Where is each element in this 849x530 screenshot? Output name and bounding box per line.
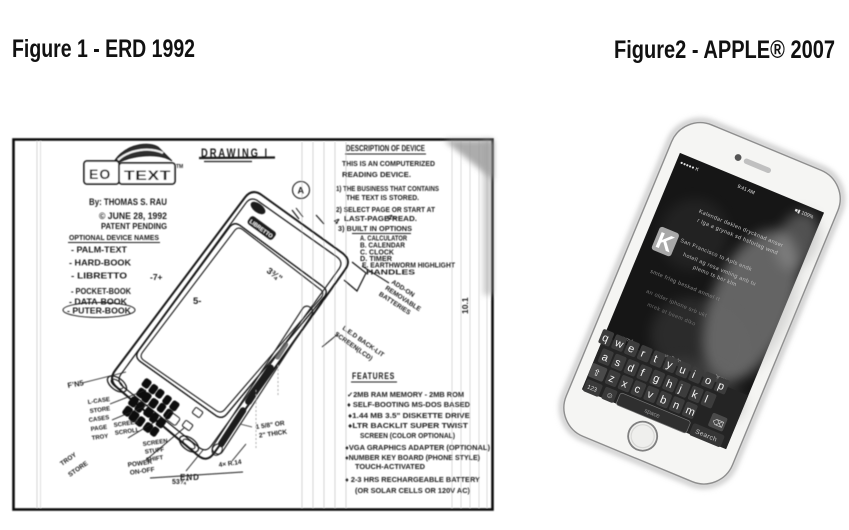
svg-text:A: A — [298, 186, 305, 196]
svg-text:THE TEXT IS STORED.: THE TEXT IS STORED. — [346, 195, 419, 202]
svg-text:READING DEVICE.: READING DEVICE. — [342, 172, 411, 179]
svg-text:10.1: 10.1 — [460, 297, 470, 314]
svg-text:TM: TM — [176, 164, 183, 170]
svg-text:(OR SOLAR CELLS OR 120V AC): (OR SOLAR CELLS OR 120V AC) — [355, 488, 470, 495]
svg-text:✓2MB RAM MEMORY - 2MB ROM: ✓2MB RAM MEMORY - 2MB ROM — [347, 392, 464, 399]
svg-text:♦1.44 MB 3.5" DISKETTE DRIVE: ♦1.44 MB 3.5" DISKETTE DRIVE — [348, 413, 470, 420]
svg-text:B. CALENDAR: B. CALENDAR — [360, 243, 405, 250]
svg-text:PATENT PENDING: PATENT PENDING — [101, 221, 167, 231]
svg-text:- LIBRETTO: - LIBRETTO — [71, 271, 127, 281]
svg-text:-7+: -7+ — [150, 272, 163, 282]
svg-text:DESCRIPTION OF DEVICE: DESCRIPTION OF DEVICE — [346, 144, 426, 153]
svg-text:♦ SELF-BOOTING MS-DOS BASED: ♦ SELF-BOOTING MS-DOS BASED — [347, 402, 470, 409]
svg-text:♦ 2-3 HRS RECHARGEABLE BATTERY: ♦ 2-3 HRS RECHARGEABLE BATTERY — [345, 477, 480, 484]
svg-text:TEXT: TEXT — [124, 167, 171, 183]
svg-text:THIS IS AN COMPUTERIZED: THIS IS AN COMPUTERIZED — [342, 161, 435, 168]
svg-text:Figure 1 - ERD 1992: Figure 1 - ERD 1992 — [12, 35, 195, 63]
svg-text:LAST-PAGE-READ.: LAST-PAGE-READ. — [344, 216, 417, 223]
svg-text:- POCKET-BOOK: - POCKET-BOOK — [71, 286, 132, 296]
svg-text:2) SELECT PAGE OR START AT: 2) SELECT PAGE OR START AT — [336, 207, 436, 214]
svg-text:- PUTER-BOOK: - PUTER-BOOK — [67, 306, 132, 316]
svg-text:SCREEN (COLOR OPTIONAL): SCREEN (COLOR OPTIONAL) — [360, 433, 455, 440]
svg-text:♦LTR BACKLIT SUPER TWIST: ♦LTR BACKLIT SUPER TWIST — [348, 423, 469, 430]
svg-text:FEATURES: FEATURES — [352, 371, 395, 382]
svg-text:- PALM-TEXT: - PALM-TEXT — [71, 245, 128, 255]
svg-text:EO: EO — [89, 166, 111, 182]
svg-text:- HARD-BOOK: - HARD-BOOK — [69, 258, 132, 268]
svg-text:By: THOMAS S. RAU: By: THOMAS S. RAU — [89, 197, 167, 207]
svg-text:Figure2 - APPLE® 2007: Figure2 - APPLE® 2007 — [614, 36, 835, 64]
svg-text:E. EARTHWORM HIGHLIGHT: E. EARTHWORM HIGHLIGHT — [362, 263, 456, 270]
svg-text:© JUNE 28, 1992: © JUNE 28, 1992 — [99, 211, 167, 221]
svg-text:5-: 5- — [193, 296, 201, 307]
svg-text:1) THE BUSINESS THAT CONTAINS: 1) THE BUSINESS THAT CONTAINS — [336, 186, 439, 193]
svg-text:OPTIONAL DEVICE NAMES: OPTIONAL DEVICE NAMES — [69, 233, 159, 242]
svg-text:♦VGA GRAPHICS ADAPTER (OPTIONA: ♦VGA GRAPHICS ADAPTER (OPTIONAL) — [345, 445, 490, 452]
svg-text:A. CALCULATOR: A. CALCULATOR — [360, 236, 407, 243]
svg-text:♦NUMBER KEY BOARD (PHONE STYLE: ♦NUMBER KEY BOARD (PHONE STYLE) — [345, 455, 480, 462]
svg-text:53¾": 53¾" — [172, 478, 189, 486]
svg-text:TOUCH-ACTIVATED: TOUCH-ACTIVATED — [355, 464, 425, 471]
svg-text:3) BUILT IN OPTIONS: 3) BUILT IN OPTIONS — [338, 226, 412, 233]
svg-text:HANDLES: HANDLES — [366, 270, 415, 277]
